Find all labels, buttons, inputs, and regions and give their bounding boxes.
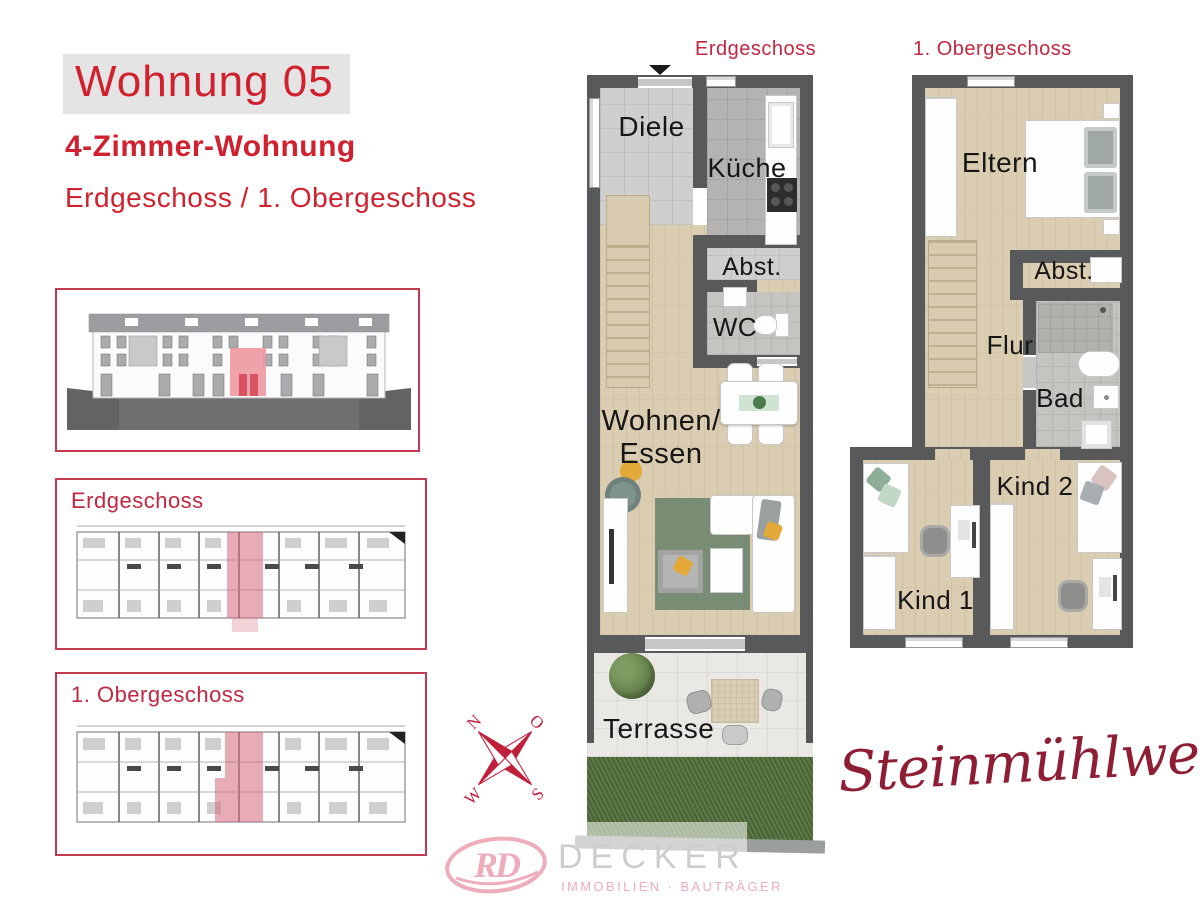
upper-overview-label: 1. Obergeschoss bbox=[71, 682, 245, 708]
terrace: Terrasse bbox=[587, 653, 813, 757]
kind2-chair bbox=[1058, 580, 1088, 612]
ottoman bbox=[710, 548, 743, 593]
u-wall-bottom bbox=[850, 635, 1133, 648]
ground-overview-drawing bbox=[67, 518, 415, 644]
kind2-wardrobe bbox=[990, 503, 1014, 630]
wc-sink bbox=[723, 287, 747, 307]
room-label-abst-og: Abst. bbox=[1028, 257, 1100, 286]
bathtub bbox=[1078, 351, 1120, 377]
terrace-wall-right bbox=[806, 653, 813, 743]
table-plant-icon bbox=[753, 396, 766, 409]
upper-overview-drawing bbox=[67, 716, 415, 848]
nightstand bbox=[1103, 219, 1120, 235]
entrance-marker-icon bbox=[649, 65, 671, 75]
tv-sideboard bbox=[603, 498, 628, 613]
ground-floor-overview-panel: Erdgeschoss bbox=[55, 478, 427, 650]
building-elevation-drawing bbox=[67, 300, 411, 442]
room-label-kueche: Küche bbox=[702, 153, 792, 184]
terrace-chair bbox=[722, 725, 748, 745]
ground-plan-header: Erdgeschoss bbox=[695, 38, 815, 61]
upper-floor-overview-panel: 1. Obergeschoss bbox=[55, 672, 427, 856]
room-label-abst: Abst. bbox=[712, 253, 792, 282]
nightstand bbox=[1103, 103, 1120, 119]
eltern-window bbox=[967, 76, 1015, 87]
u-wall-left-upper bbox=[912, 75, 925, 460]
bad-sink bbox=[1093, 385, 1119, 409]
room-label-flur: Flur bbox=[980, 330, 1040, 361]
wall-top bbox=[587, 75, 813, 88]
terrace-wall-left bbox=[587, 653, 594, 743]
dining-table bbox=[720, 381, 798, 425]
page-title: Wohnung 05 bbox=[63, 54, 350, 114]
room-label-bad: Bad bbox=[1032, 383, 1088, 414]
room-label-eltern: Eltern bbox=[955, 147, 1045, 179]
stair-landing bbox=[606, 195, 650, 245]
kind2-desk bbox=[1092, 558, 1122, 630]
terrace-sliding-door bbox=[645, 637, 745, 651]
room-label-kind1: Kind 1 bbox=[888, 585, 983, 616]
room-label-terrasse: Terrasse bbox=[603, 713, 713, 745]
room-label-diele: Diele bbox=[609, 111, 694, 143]
coffee-table bbox=[658, 550, 703, 593]
brochure-page: Wohnung 05 4-Zimmer-Wohnung Erdgeschoss … bbox=[0, 0, 1200, 900]
diele-window bbox=[589, 98, 600, 188]
apartment-type-subtitle: 4-Zimmer-Wohnung bbox=[65, 130, 356, 164]
u-wall-left-lower bbox=[850, 447, 863, 648]
kitchen-sink bbox=[768, 102, 794, 148]
u-wall-top bbox=[912, 75, 1133, 88]
page-title-wrap: Wohnung 05 bbox=[63, 54, 350, 114]
wall-hall-left bbox=[693, 235, 707, 367]
logo-company-name: DECKER bbox=[558, 838, 748, 877]
entrance-door bbox=[638, 77, 692, 88]
upper-staircase bbox=[928, 240, 977, 388]
ground-floor-plan: Diele Küche Abst. WC Wohnen/ Essen bbox=[587, 75, 813, 653]
compass-south-label: S bbox=[528, 784, 548, 804]
kind1-bed bbox=[863, 463, 909, 553]
toilet-tank bbox=[775, 313, 789, 337]
kind2-door bbox=[1025, 449, 1060, 460]
terrace-chair bbox=[685, 688, 714, 715]
washing-machine bbox=[1081, 420, 1112, 449]
terrace-chair bbox=[760, 687, 784, 713]
kitchen-window bbox=[706, 76, 736, 87]
svg-text:RD: RD bbox=[473, 845, 521, 885]
bed-pillow bbox=[1084, 127, 1117, 168]
kind1-desk bbox=[950, 505, 980, 578]
kind2-window bbox=[1010, 637, 1068, 648]
ground-overview-label: Erdgeschoss bbox=[71, 488, 204, 514]
room-label-wc: WC bbox=[705, 312, 765, 343]
bed-pillow bbox=[1084, 172, 1117, 213]
terrace-plant-icon bbox=[609, 653, 655, 699]
floors-subtitle: Erdgeschoss / 1. Obergeschoss bbox=[65, 182, 476, 214]
room-label-wohnen: Wohnen/ Essen bbox=[601, 405, 721, 471]
u-wall-abst-left bbox=[1010, 250, 1023, 300]
kind2-bed bbox=[1077, 462, 1122, 553]
compass-west-label: W bbox=[461, 784, 486, 808]
kind1-door bbox=[935, 449, 970, 460]
upper-floor-plan: Eltern Abst. Flur Bad Kind 2 Kind 1 bbox=[850, 75, 1133, 648]
compass-rose: N O S W bbox=[452, 702, 558, 808]
shower bbox=[1038, 303, 1113, 353]
compass-north-label: N bbox=[463, 711, 485, 733]
building-elevation-panel bbox=[55, 288, 420, 452]
shower-head-icon bbox=[1100, 307, 1106, 313]
u-wall-abst-bottom bbox=[1023, 288, 1120, 301]
logo-monogram-icon: RD bbox=[442, 834, 552, 898]
project-name: Steinmühlweg bbox=[837, 720, 1200, 806]
logo-tagline: IMMOBILIEN · BAUTRÄGER bbox=[561, 879, 783, 894]
room-label-kind2: Kind 2 bbox=[990, 471, 1080, 502]
compass-east-label: O bbox=[526, 711, 548, 733]
terrace-table bbox=[711, 679, 759, 723]
tv-icon bbox=[609, 529, 614, 584]
staircase bbox=[606, 245, 650, 388]
kind1-window bbox=[905, 637, 963, 648]
upper-plan-header: 1. Obergeschoss bbox=[913, 38, 1093, 61]
eltern-wardrobe bbox=[925, 97, 957, 237]
kind1-chair bbox=[920, 525, 950, 557]
company-logo: RD DECKER IMMOBILIEN · BAUTRÄGER bbox=[442, 830, 772, 900]
